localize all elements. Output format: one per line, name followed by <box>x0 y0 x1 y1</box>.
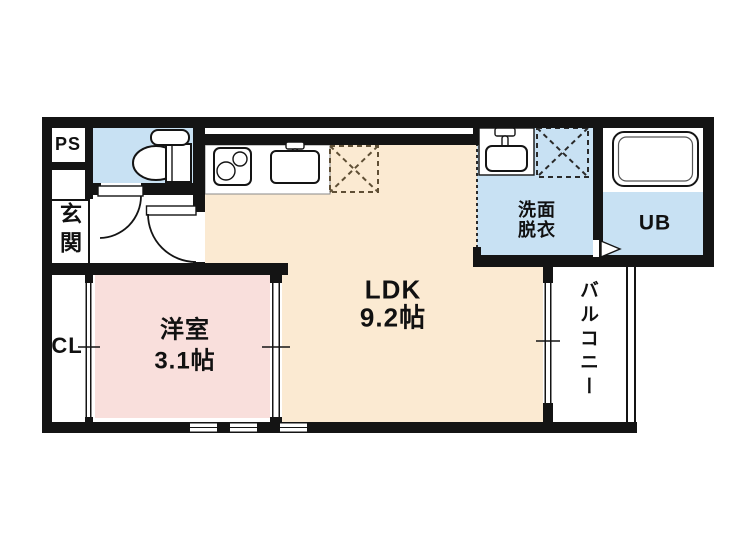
wall-top <box>42 117 714 128</box>
wash-basin-icon <box>479 128 534 175</box>
label-balcony: バルコニー <box>574 280 601 400</box>
wall-toilet-bottom-right <box>141 183 193 195</box>
label-closet: CL <box>51 333 82 359</box>
label-washroom-line1: 洗面 <box>518 200 556 222</box>
wall-closet-door-top <box>85 275 93 283</box>
wall-ps-right <box>85 117 93 199</box>
balcony-rail-inner-line <box>634 267 636 422</box>
wall-westernroom-right-top <box>270 263 282 283</box>
label-ldk-size: 9.2帖 <box>360 302 426 333</box>
line-entrance-hall <box>88 199 90 263</box>
stove-icon <box>214 148 251 185</box>
label-entrance: 玄関 <box>53 202 85 260</box>
label-pipe-space: PS <box>55 134 81 156</box>
wall-hall-kitchen-upper <box>193 117 205 212</box>
label-washroom-line2: 脱衣 <box>518 220 556 242</box>
western-room-floor <box>95 275 270 418</box>
label-unit-bath: UB <box>639 210 671 235</box>
bathtub-icon <box>613 132 698 186</box>
wall-right-upper <box>703 117 714 267</box>
label-western-room: 洋室 <box>160 317 210 346</box>
wall-washroom-left-bottom <box>473 247 481 267</box>
wall-kitchen-inner-bar <box>205 134 481 145</box>
wall-washroom-ub <box>593 117 603 257</box>
label-western-room-size: 3.1帖 <box>154 348 215 377</box>
floor-plan: PS 玄関 CL 洋室 3.1帖 LDK 9.2帖 洗面 脱衣 UB バルコニー <box>0 0 750 550</box>
line-entrance-niche <box>52 199 89 201</box>
balcony-rail-outer-line <box>626 267 628 422</box>
hall-ldk-door-swing-icon <box>147 206 197 262</box>
label-ldk: LDK <box>365 274 421 305</box>
wall-ps-bottom <box>42 162 93 170</box>
wall-hall-westernroom <box>42 263 288 275</box>
toilet-door-swing-icon <box>98 186 143 238</box>
wall-closet-door-bottom <box>85 417 93 433</box>
